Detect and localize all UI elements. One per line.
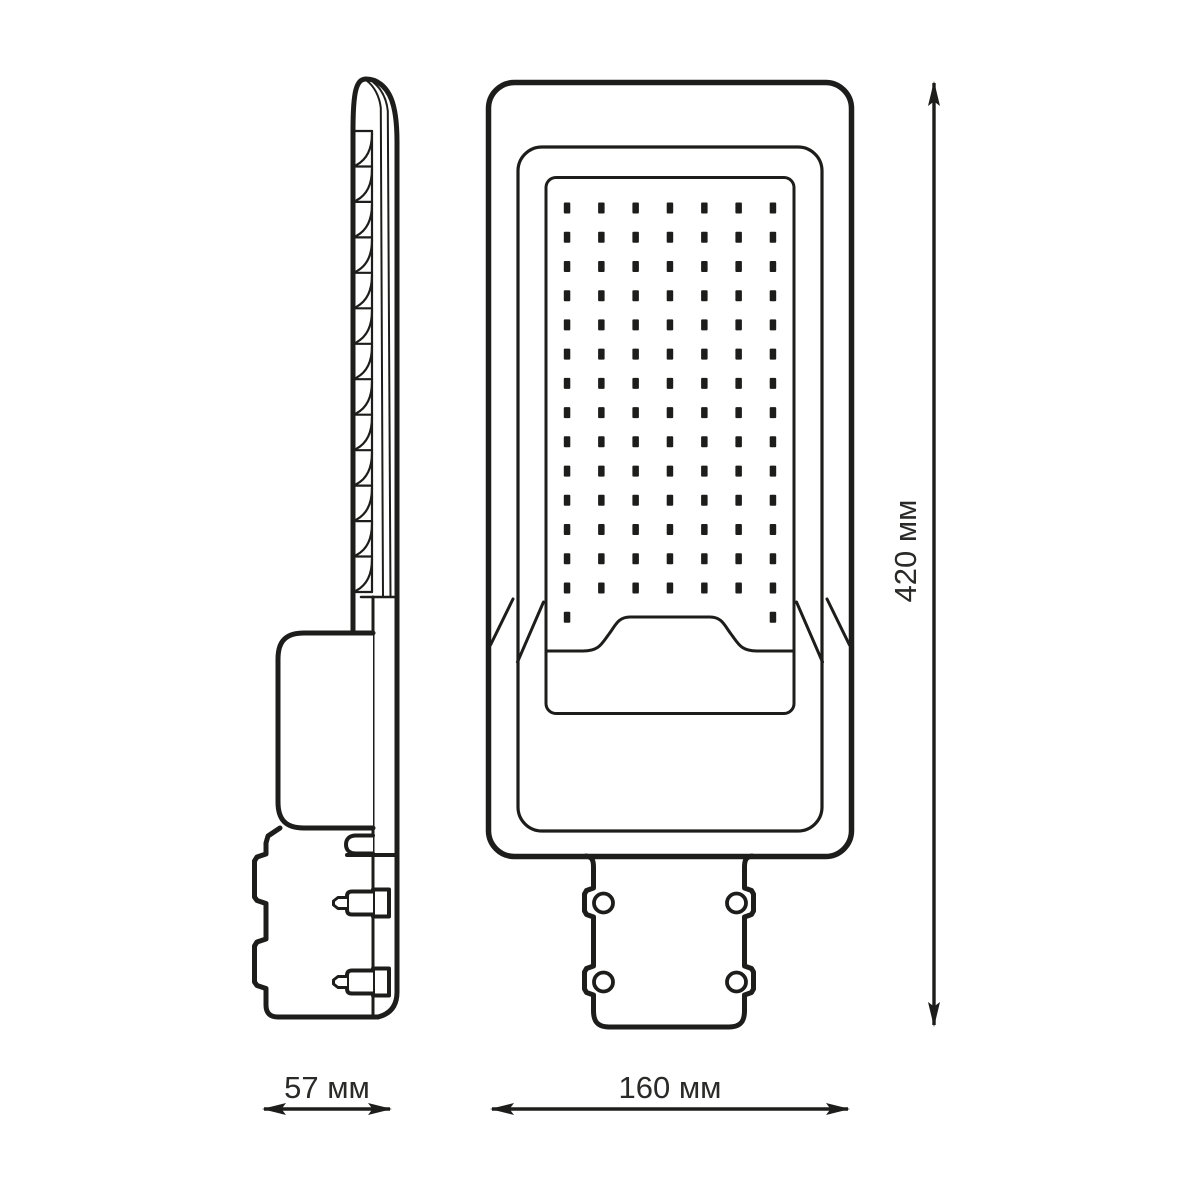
led-dot: [770, 232, 777, 243]
led-dot: [770, 524, 777, 535]
led-dot: [701, 290, 708, 301]
led-dot: [667, 407, 674, 418]
fin-blade: [357, 488, 373, 519]
led-dot: [701, 232, 708, 243]
led-dot: [598, 261, 605, 272]
led-dot: [701, 495, 708, 506]
dim-front-width: 160 мм: [490, 1070, 850, 1115]
led-dot: [701, 466, 708, 477]
fin-blade: [357, 382, 373, 414]
led-dot: [735, 436, 742, 447]
led-dot: [701, 583, 708, 594]
bolt-bottom-tip: [334, 977, 348, 988]
led-dot: [735, 261, 742, 272]
drawing-canvas: 57 мм 160 мм 420 мм: [0, 0, 1200, 1200]
led-dot: [770, 319, 777, 330]
led-dot: [564, 407, 571, 418]
led-dot: [632, 495, 639, 506]
led-dot: [770, 290, 777, 301]
led-dot: [564, 436, 571, 447]
led-dot: [598, 290, 605, 301]
led-dot: [632, 290, 639, 301]
fin-blade: [357, 417, 373, 449]
led-dot: [564, 612, 571, 623]
led-dot: [667, 553, 674, 564]
led-dot: [735, 290, 742, 301]
led-dot: [564, 290, 571, 301]
led-dot: [770, 553, 777, 564]
led-dot: [701, 261, 708, 272]
street-light-drawing: 57 мм 160 мм 420 мм: [0, 0, 1200, 1200]
led-dot: [598, 378, 605, 389]
led-dot: [598, 232, 605, 243]
led-dot: [770, 436, 777, 447]
led-dot: [667, 232, 674, 243]
led-dot: [701, 553, 708, 564]
fin-blade: [357, 311, 373, 343]
led-dot: [701, 203, 708, 214]
led-dot: [735, 495, 742, 506]
led-dot: [632, 524, 639, 535]
bolt-hole: [594, 894, 613, 913]
fin-blade: [357, 275, 373, 307]
fin-blade: [357, 453, 373, 484]
led-dot: [735, 203, 742, 214]
dim-label-side-width: 57 мм: [284, 1070, 370, 1105]
fin-blade: [357, 240, 373, 271]
led-dot: [632, 466, 639, 477]
led-dot: [632, 407, 639, 418]
led-dot: [667, 290, 674, 301]
bolt-middle-tip: [334, 898, 348, 909]
led-dot: [564, 583, 571, 594]
led-dot: [735, 319, 742, 330]
led-dot: [701, 407, 708, 418]
bolt-hole: [727, 894, 746, 913]
led-dot: [564, 261, 571, 272]
inner-frame: [518, 147, 822, 831]
bolt-top: [346, 836, 373, 854]
led-dot: [632, 583, 639, 594]
led-dot: [564, 553, 571, 564]
led-dot: [632, 553, 639, 564]
bolt-middle-body: [347, 892, 373, 915]
led-dot: [564, 524, 571, 535]
led-dot: [632, 203, 639, 214]
led-dot: [770, 407, 777, 418]
bolt-hole: [727, 973, 746, 992]
led-dot: [735, 349, 742, 360]
bolt-middle-head: [373, 890, 389, 917]
led-dot: [770, 612, 777, 623]
led-dot: [735, 232, 742, 243]
led-dot: [667, 349, 674, 360]
led-dot: [598, 583, 605, 594]
led-dot: [667, 436, 674, 447]
led-dot: [701, 436, 708, 447]
led-dot: [735, 407, 742, 418]
front-view: [489, 83, 852, 1028]
led-dot: [598, 553, 605, 564]
dim-height: 420 мм: [888, 81, 940, 1027]
led-dot: [770, 261, 777, 272]
dim-label-front-width: 160 мм: [619, 1070, 722, 1105]
led-dot: [735, 378, 742, 389]
led-dot: [735, 583, 742, 594]
led-dot: [770, 349, 777, 360]
led-dot: [564, 349, 571, 360]
led-dot: [632, 378, 639, 389]
led-grid: [564, 203, 776, 623]
driver-box: [278, 633, 373, 828]
led-dot: [598, 436, 605, 447]
led-dot: [667, 378, 674, 389]
bolt-bottom-body: [347, 971, 373, 994]
led-dot: [564, 232, 571, 243]
led-dot: [598, 203, 605, 214]
led-dot: [564, 466, 571, 477]
led-dot: [632, 261, 639, 272]
led-dot: [598, 466, 605, 477]
led-dot: [735, 524, 742, 535]
fin-blade: [357, 134, 373, 166]
led-dot: [667, 203, 674, 214]
led-dot: [667, 583, 674, 594]
led-dot: [770, 583, 777, 594]
led-dot: [632, 436, 639, 447]
led-dot: [667, 261, 674, 272]
mount-arm-front: [585, 856, 754, 1027]
fin-blade: [357, 169, 373, 200]
led-dot: [564, 378, 571, 389]
led-dot: [701, 319, 708, 330]
fin-blade: [357, 559, 373, 591]
led-dot: [770, 466, 777, 477]
panel-hump: [547, 617, 793, 651]
led-dot: [598, 524, 605, 535]
led-dot: [667, 466, 674, 477]
led-dot: [632, 319, 639, 330]
bolt-hole: [594, 973, 613, 992]
fin-blade: [357, 346, 373, 377]
led-dot: [735, 553, 742, 564]
heatsink-fins: [353, 131, 372, 592]
bolt-bottom-head: [373, 969, 389, 996]
dim-side-width: 57 мм: [262, 1070, 392, 1115]
fin-stack: [356, 134, 372, 593]
led-dot: [564, 495, 571, 506]
led-dot: [701, 524, 708, 535]
led-dot: [598, 319, 605, 330]
led-dot: [598, 495, 605, 506]
led-dot: [701, 378, 708, 389]
led-dot: [735, 466, 742, 477]
led-dot: [632, 232, 639, 243]
led-dot: [770, 378, 777, 389]
fin-blade: [357, 204, 373, 236]
led-dot: [598, 349, 605, 360]
fin-blade: [357, 524, 373, 555]
led-dot: [667, 524, 674, 535]
side-view: [255, 79, 398, 1017]
glass-line-inner: [367, 81, 384, 598]
led-dot: [701, 349, 708, 360]
led-dot: [667, 495, 674, 506]
wing-lines: [491, 599, 850, 662]
dim-label-height: 420 мм: [888, 500, 923, 603]
led-dot: [770, 203, 777, 214]
led-dot: [564, 319, 571, 330]
led-dot: [667, 319, 674, 330]
led-dot: [632, 349, 639, 360]
led-dot: [564, 203, 571, 214]
led-dot: [770, 495, 777, 506]
led-dot: [598, 407, 605, 418]
